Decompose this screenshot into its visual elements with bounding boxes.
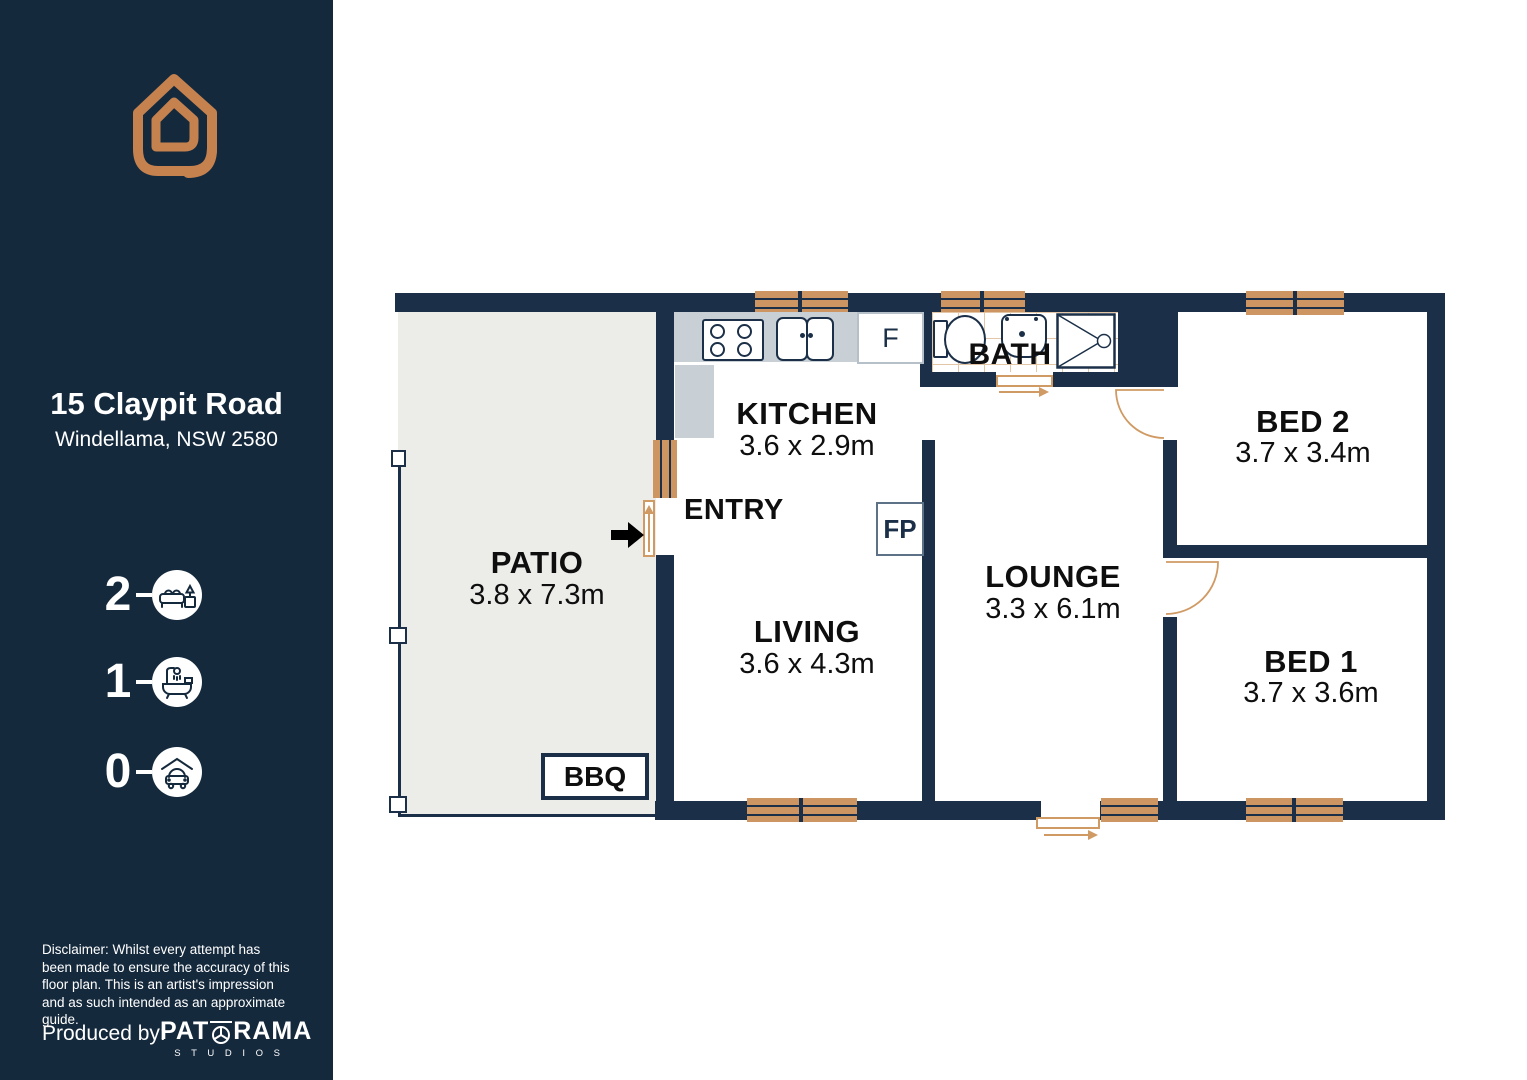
patorama-house-logo [127, 72, 221, 182]
sidebar: 15 Claypit Road Windellama, NSW 2580 2 1 [0, 0, 333, 1080]
produced-by-label: Produced by: [42, 1022, 166, 1046]
disclaimer-text: Disclaimer: Whilst every attempt has bee… [42, 941, 294, 1029]
bed-icon [157, 575, 197, 615]
bath-count: 1 [100, 657, 136, 707]
wall-segment [656, 555, 674, 801]
room-label-kitchen: KITCHEN [700, 396, 914, 432]
room-label-lounge: LOUNGE [946, 559, 1160, 595]
entry-door-arrow-head [644, 505, 654, 514]
tap-dot [1034, 317, 1038, 321]
wall-segment [1163, 545, 1445, 558]
room-label-bed1: BED 1 [1204, 644, 1418, 680]
patio-post [389, 627, 407, 644]
tap-dot [800, 333, 805, 338]
wall-segment [1118, 312, 1178, 387]
room-label-bath: BATH [930, 338, 1090, 372]
wall-segment [1163, 617, 1177, 801]
stat-dash [136, 770, 152, 774]
sliding-door [1036, 817, 1100, 829]
entry-arrow-icon [611, 530, 628, 540]
window [653, 440, 677, 498]
slide-arrow-head [1088, 830, 1098, 840]
basin-drain-dot [1019, 331, 1025, 337]
floorplan-page: 15 Claypit Road Windellama, NSW 2580 2 1 [0, 0, 1527, 1080]
fridge-box: F [857, 312, 924, 364]
brand-text-rama: RAMA [233, 1017, 312, 1046]
room-label-entry: ENTRY [684, 494, 784, 527]
door-swing-bed2 [1114, 388, 1166, 440]
bbq-label: BBQ [564, 761, 626, 793]
window-mullion [799, 798, 803, 822]
window-mullion [1292, 798, 1296, 822]
room-label-bed2: BED 2 [1196, 404, 1410, 440]
bath-stat-circle [152, 657, 202, 707]
car-stat-circle [152, 747, 202, 797]
fireplace-label: FP [883, 514, 916, 545]
window [1101, 798, 1158, 822]
room-label-living: LIVING [700, 614, 914, 650]
wall-segment [656, 312, 674, 440]
sink-icon [776, 317, 808, 361]
stat-dash [136, 680, 152, 684]
room-dims-bed2: 3.7 x 3.4m [1196, 437, 1410, 470]
bed-stat-circle [152, 570, 202, 620]
car-icon [157, 752, 197, 792]
wall-segment [922, 440, 935, 801]
bed-count: 2 [100, 570, 136, 620]
tap-dot [1005, 317, 1009, 321]
car-count: 0 [100, 747, 136, 797]
room-dims-kitchen: 3.6 x 2.9m [700, 430, 914, 463]
aperture-icon [210, 1020, 232, 1046]
window-mullion [1293, 291, 1297, 315]
room-dims-bed1: 3.7 x 3.6m [1204, 677, 1418, 710]
fridge-label: F [882, 323, 899, 354]
patio-post [389, 796, 407, 813]
room-dims-patio: 3.8 x 7.3m [430, 579, 644, 612]
room-dims-lounge: 3.3 x 6.1m [946, 593, 1160, 626]
wall-segment [920, 370, 996, 387]
address-line1: 15 Claypit Road [0, 386, 333, 422]
patio-post [391, 450, 406, 467]
brand-logo: PAT RAMA [160, 1017, 312, 1046]
wall-segment [1163, 440, 1177, 545]
door-swing-bed1 [1164, 559, 1220, 617]
slide-arrow-head [1039, 387, 1049, 397]
sink-icon [806, 317, 834, 361]
room-dims-living: 3.6 x 4.3m [700, 648, 914, 681]
tap-dot [808, 333, 813, 338]
brand-studios-label: S T U D I O S [160, 1048, 284, 1059]
wall-segment [1053, 370, 1118, 387]
room-label-patio: PATIO [430, 545, 644, 581]
entry-door-arrow [648, 514, 650, 552]
slide-arrow [1044, 834, 1088, 836]
stove-icon [702, 319, 764, 361]
patio-edge-line [398, 814, 656, 817]
brand-text-pat: PAT [160, 1017, 209, 1046]
address-line2: Windellama, NSW 2580 [0, 428, 333, 452]
bath-icon [157, 662, 197, 702]
bbq-box: BBQ [541, 753, 649, 800]
fireplace-box: FP [876, 502, 924, 556]
slide-arrow [999, 391, 1039, 393]
stat-dash [136, 593, 152, 597]
sliding-door [996, 375, 1053, 387]
